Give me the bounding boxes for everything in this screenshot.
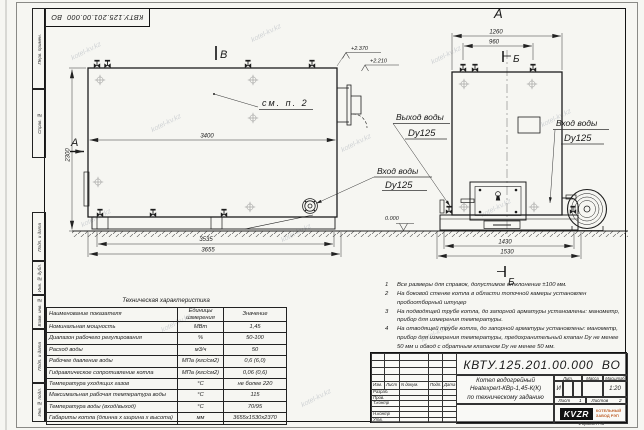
role-label: Утв. xyxy=(372,417,400,423)
product-name-cell: Котел водогрейный Heatexpert-КВр-1,45-К(… xyxy=(456,374,555,405)
format-note: Формат А3 xyxy=(578,422,604,427)
side-inlet-leader xyxy=(550,130,555,203)
spec-name: Гидравлическое сопротивление котла xyxy=(47,367,178,378)
dim-1260: 1260 xyxy=(489,30,503,36)
hdr-data: Дата xyxy=(443,382,457,390)
product-line2: Heatexpert-КВр-1,45-К(К) xyxy=(470,385,541,393)
note-item: 4 На отводящей трубе котла, до запорной … xyxy=(383,325,626,352)
spec-units: мм xyxy=(178,413,224,424)
dim-3535: 3535 xyxy=(199,237,213,243)
spec-row: Температура уходящих газов°Сне более 220 xyxy=(47,378,287,389)
spec-row: Диапазон рабочего регулирования%50-100 xyxy=(47,333,287,344)
spec-value: не более 220 xyxy=(224,378,287,389)
spec-col-units-l2: измерения xyxy=(180,315,221,321)
dim-3400: 3400 xyxy=(200,134,214,140)
spec-name: Диапазон рабочего регулирования xyxy=(47,333,178,344)
front-inlet-dy-label: Dy125 xyxy=(385,180,413,191)
spec-value: 50-100 xyxy=(224,333,287,344)
outlet-label: Выход воды xyxy=(396,112,445,122)
revision-row xyxy=(372,375,457,382)
note-item: 2 На боковой стенке котла в области топо… xyxy=(383,290,626,308)
revision-row xyxy=(372,361,457,368)
spec-name: Рабочее давление воды xyxy=(47,356,178,367)
front-inlet-label: Вход воды xyxy=(377,166,419,176)
spec-units: МПа (кгс/см2) xyxy=(178,356,224,367)
title-block-revision-grid: Изм. Лист N докум. Подп. Дата Разраб. Пр… xyxy=(371,353,457,423)
callout-leader xyxy=(214,94,258,107)
dim-2300: 2300 xyxy=(66,148,72,163)
spec-units: МПа (кгс/см2) xyxy=(178,367,224,378)
revision-row xyxy=(372,354,457,361)
hdr-list: Лист xyxy=(385,382,400,390)
spec-units: % xyxy=(178,333,224,344)
product-line1: Котел водогрейный xyxy=(476,377,535,385)
spec-value: 70/95 xyxy=(224,401,287,412)
drawing-sheet: kotel-kv.kz kotel-kv.kz kotel-kv.kz kote… xyxy=(0,0,644,430)
spec-row: Температура воды (вход/выход)°С70/95 xyxy=(47,401,287,412)
spec-table-title: Техническая характеристика xyxy=(46,297,286,304)
front-view xyxy=(84,61,367,229)
spec-value: 115 xyxy=(224,390,287,401)
product-line3: по техническому заданию xyxy=(467,394,543,402)
drawing-notes: 1 Все размеры для справок, допустимое от… xyxy=(383,281,626,352)
outlet-dy-label: Dy125 xyxy=(408,128,436,139)
note-number: 2 xyxy=(383,290,397,308)
spec-row: Габариты котла (длинна х ширина х высота… xyxy=(47,413,287,424)
side-inlet-dy-label: Dy125 xyxy=(564,133,592,144)
spec-name: Температура воды (вход/выход) xyxy=(47,401,178,412)
spec-units: °С xyxy=(178,378,224,389)
spec-col-units: Единицыизмерения xyxy=(178,308,224,322)
elevation-2210: +2.210 xyxy=(370,59,388,65)
spec-value: 0,6 (6,0) xyxy=(224,356,287,367)
hdr-doc: N докум. xyxy=(400,382,429,390)
spec-name: Габариты котла (длинна х ширина х высота… xyxy=(47,413,178,424)
ground-line xyxy=(72,231,628,237)
see-note-label: см. п. 2 xyxy=(262,98,309,108)
blank-cell xyxy=(456,403,555,424)
spec-table: Наименование показателя Единицыизмерения… xyxy=(46,307,287,425)
spec-units: м3/ч xyxy=(178,344,224,355)
side-inlet-label: Вход воды xyxy=(556,118,598,128)
hdr-podp: Подп. xyxy=(429,382,443,390)
spec-header-row: Наименование показателя Единицыизмерения… xyxy=(47,308,287,322)
spec-value: 50 xyxy=(224,344,287,355)
dim-1530: 1530 xyxy=(500,250,514,256)
section-label-b2-top: Б xyxy=(513,54,520,65)
spec-units: МВт xyxy=(178,322,224,333)
role-row: Утв. xyxy=(372,417,457,423)
title-block-doc-number: КВТУ.125.201.00.000 ВО xyxy=(456,353,628,376)
spec-row: Рабочее давление водыМПа (кгс/см2)0,6 (6… xyxy=(47,356,287,367)
elevation-zero-tick xyxy=(400,224,408,231)
spec-units: °С xyxy=(178,401,224,412)
revision-row xyxy=(372,368,457,375)
dim-1430: 1430 xyxy=(498,240,512,246)
spec-units: °С xyxy=(178,390,224,401)
note-text: На подводящей трубе котла, до запорной а… xyxy=(397,308,626,326)
spec-row: Номинальная мощностьМВт1,45 xyxy=(47,322,287,333)
spec-table-section: Техническая характеристика Наименование … xyxy=(46,297,286,425)
dim-3655: 3655 xyxy=(201,248,215,254)
title-block: Изм. Лист N докум. Подп. Дата Разраб. Пр… xyxy=(370,352,627,423)
front-inlet-leader xyxy=(316,177,374,204)
hdr-izm: Изм. xyxy=(372,382,385,390)
company-line2: ЗАВОД РЭП xyxy=(596,414,621,418)
revision-header-row: Изм. Лист N докум. Подп. Дата xyxy=(372,382,457,390)
spec-col-value: Значение xyxy=(224,308,287,322)
note-number: 4 xyxy=(383,325,397,352)
spec-col-name: Наименование показателя xyxy=(47,308,178,322)
spec-row: Максимальная рабочая температура воды°С1… xyxy=(47,390,287,401)
note-text: Все размеры для справок, допустимое откл… xyxy=(397,281,626,290)
view-label-a: А xyxy=(493,6,503,21)
spec-row: Расход водым3/ч50 xyxy=(47,344,287,355)
spec-value: 1,45 xyxy=(224,322,287,333)
spec-name: Максимальная рабочая температура воды xyxy=(47,390,178,401)
elevation-2370: +2.370 xyxy=(351,46,369,52)
note-number: 3 xyxy=(383,308,397,326)
water-inlet-flange xyxy=(303,199,318,214)
company-name: КОТЕЛЬНЫЙ ЗАВОД РЭП xyxy=(596,409,621,418)
note-number: 1 xyxy=(383,281,397,290)
spec-name: Расход воды xyxy=(47,344,178,355)
note-item: 1 Все размеры для справок, допустимое от… xyxy=(383,281,626,290)
spec-row: Гидравлическое сопротивление котлаМПа (к… xyxy=(47,367,287,378)
kvzr-logo: KVZR xyxy=(560,408,593,420)
note-item: 3 На подводящей трубе котла, до запорной… xyxy=(383,308,626,326)
spec-value: 3655х1530х2370 xyxy=(224,413,287,424)
dim-960: 960 xyxy=(489,40,500,46)
section-label-b: В xyxy=(220,49,227,61)
elevation-marks xyxy=(337,53,399,72)
spec-value: 0,06 (0,6) xyxy=(224,367,287,378)
section-label-a: А xyxy=(70,137,78,149)
spec-name: Номинальная мощность xyxy=(47,322,178,333)
spec-name: Температура уходящих газов xyxy=(47,378,178,389)
note-text: На отводящей трубе котла, до запорной ар… xyxy=(397,325,626,352)
note-text: На боковой стенке котла в области топочн… xyxy=(397,290,626,308)
elevation-zero: 0.000 xyxy=(385,216,400,222)
